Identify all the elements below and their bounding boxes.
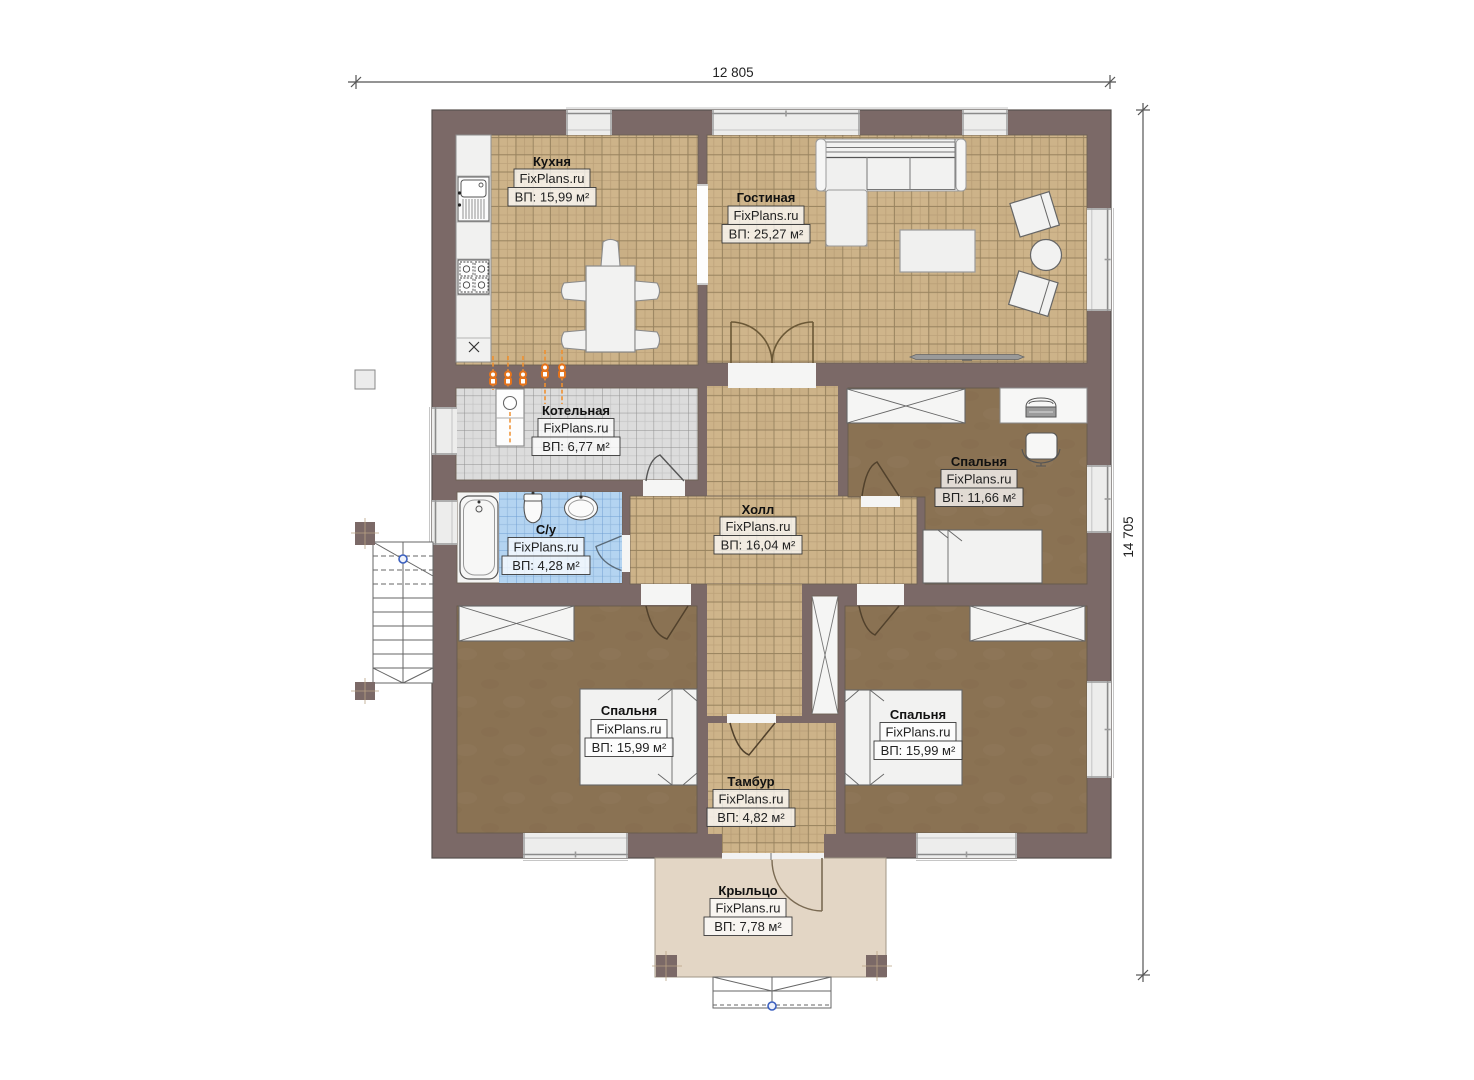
svg-text:ВП: 16,04 м²: ВП: 16,04 м²	[721, 538, 796, 553]
svg-text:FixPlans.ru: FixPlans.ru	[596, 722, 661, 737]
svg-text:Тамбур: Тамбур	[727, 774, 774, 789]
svg-text:ВП: 6,77 м²: ВП: 6,77 м²	[542, 439, 610, 454]
svg-text:Кухня: Кухня	[533, 154, 571, 169]
svg-text:С/у: С/у	[536, 522, 557, 537]
svg-text:Крыльцо: Крыльцо	[718, 883, 777, 898]
svg-text:14 705: 14 705	[1121, 516, 1136, 557]
svg-text:FixPlans.ru: FixPlans.ru	[725, 519, 790, 534]
svg-text:ВП: 4,28 м²: ВП: 4,28 м²	[512, 558, 580, 573]
svg-text:ВП: 25,27 м²: ВП: 25,27 м²	[729, 227, 804, 242]
svg-text:Спальня: Спальня	[951, 454, 1007, 469]
svg-text:ВП: 4,82 м²: ВП: 4,82 м²	[717, 810, 785, 825]
svg-text:FixPlans.ru: FixPlans.ru	[715, 901, 780, 916]
svg-text:Котельная: Котельная	[542, 403, 610, 418]
svg-text:ВП: 15,99 м²: ВП: 15,99 м²	[881, 743, 956, 758]
svg-text:FixPlans.ru: FixPlans.ru	[543, 421, 608, 436]
svg-text:ВП: 7,78 м²: ВП: 7,78 м²	[714, 919, 782, 934]
svg-text:FixPlans.ru: FixPlans.ru	[946, 472, 1011, 487]
svg-text:FixPlans.ru: FixPlans.ru	[885, 725, 950, 740]
svg-text:12 805: 12 805	[712, 65, 753, 80]
svg-text:Спальня: Спальня	[890, 707, 946, 722]
svg-text:Спальня: Спальня	[601, 703, 657, 718]
svg-text:ВП: 15,99 м²: ВП: 15,99 м²	[592, 740, 667, 755]
svg-text:Холл: Холл	[742, 502, 775, 517]
svg-text:Гостиная: Гостиная	[737, 190, 796, 205]
svg-text:FixPlans.ru: FixPlans.ru	[519, 171, 584, 186]
svg-text:FixPlans.ru: FixPlans.ru	[718, 792, 783, 807]
svg-text:FixPlans.ru: FixPlans.ru	[733, 208, 798, 223]
svg-text:ВП: 15,99 м²: ВП: 15,99 м²	[515, 190, 590, 205]
svg-text:FixPlans.ru: FixPlans.ru	[513, 540, 578, 555]
svg-text:ВП: 11,66 м²: ВП: 11,66 м²	[942, 490, 1016, 505]
